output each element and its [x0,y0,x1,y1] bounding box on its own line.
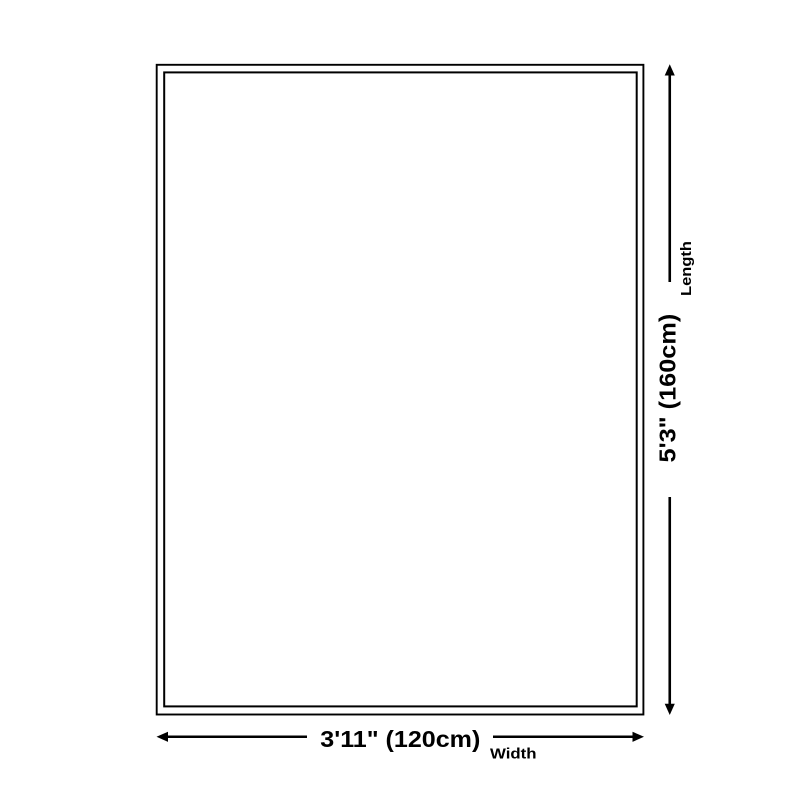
svg-text:Width: Width [490,745,537,762]
svg-text:Length: Length [678,241,695,296]
svg-text:5'3" (160cm): 5'3" (160cm) [655,314,681,463]
svg-text:3'11" (120cm): 3'11" (120cm) [320,726,480,752]
